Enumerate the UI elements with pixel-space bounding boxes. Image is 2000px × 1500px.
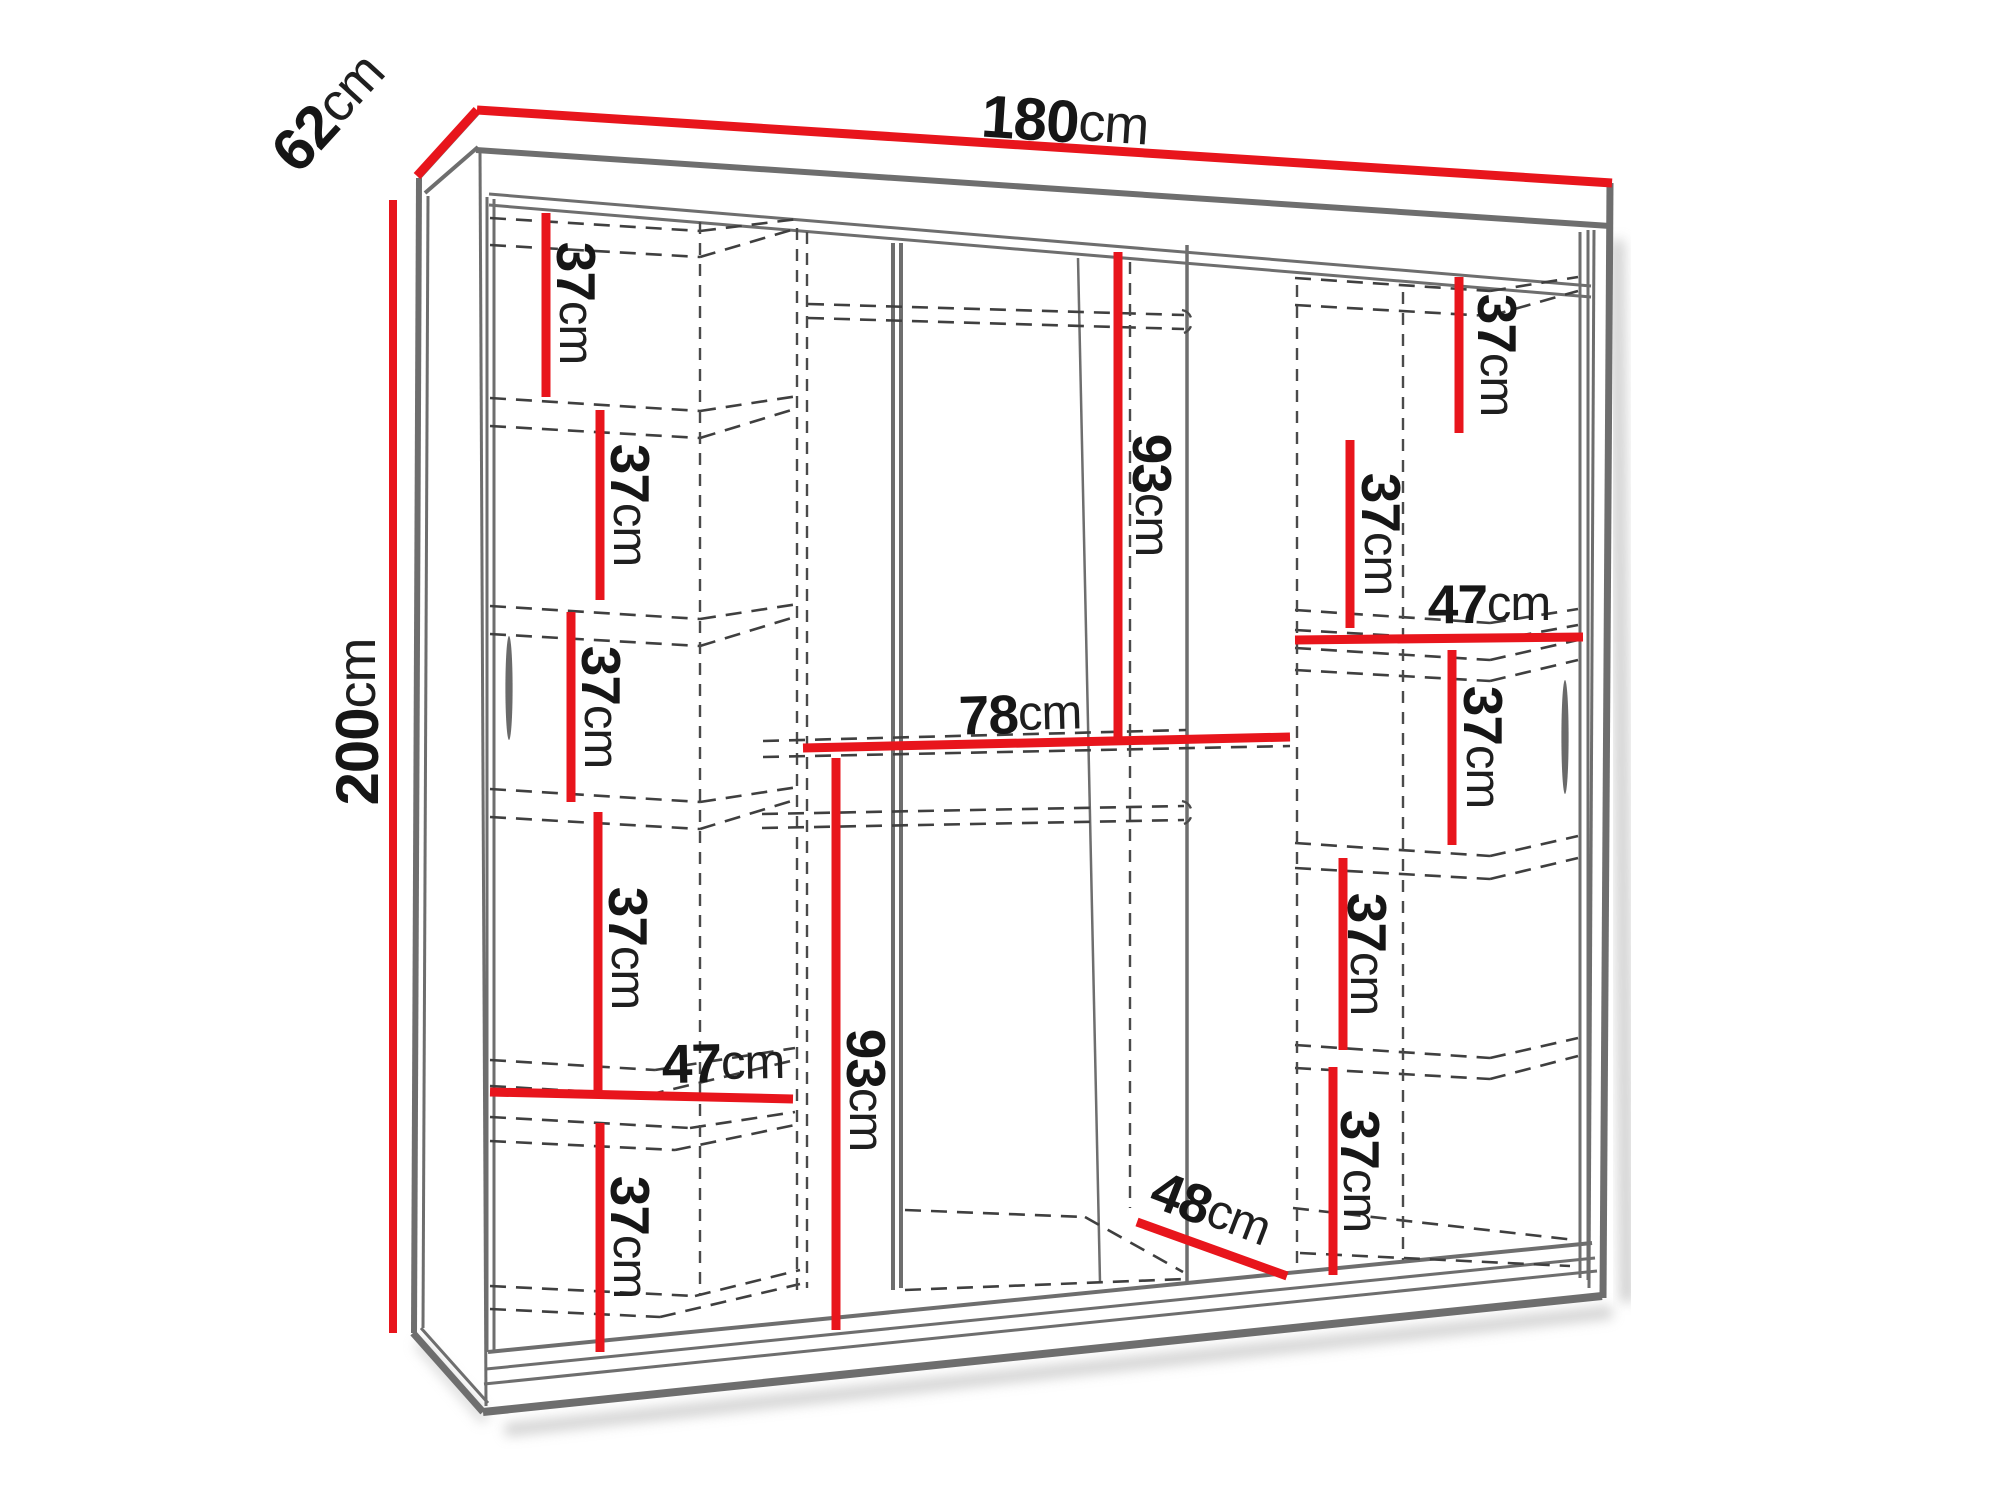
left-panel-inner-line bbox=[423, 196, 428, 1328]
label-right-47: 47cm bbox=[1428, 573, 1551, 635]
back-corner-line bbox=[1078, 258, 1100, 1282]
wardrobe-dimension-diagram: 180cm 62cm 200cm 37cm 37cm 37cm 37cm 47c… bbox=[0, 0, 2000, 1500]
shelf-dash bbox=[1295, 836, 1578, 879]
left-column-shelves-dashed bbox=[490, 218, 807, 1317]
label-middle-93-lower: 93cm bbox=[835, 1029, 897, 1152]
hanging-rod-upper bbox=[808, 304, 1184, 329]
bottom-left-corner-edge bbox=[413, 1333, 483, 1412]
left-door-handle bbox=[505, 636, 512, 740]
right-front-inner-edge bbox=[1589, 230, 1594, 1288]
label-left-37-1: 37cm bbox=[545, 242, 607, 365]
interior-ceiling-edge-1 bbox=[489, 194, 1591, 286]
label-middle-93-upper: 93cm bbox=[1121, 434, 1183, 557]
dim-line-left-47 bbox=[490, 1092, 793, 1099]
left-outer-edge bbox=[414, 178, 419, 1333]
right-outer-edge bbox=[1603, 183, 1610, 1298]
diagram-canvas: 180cm 62cm 200cm 37cm 37cm 37cm 37cm 47c… bbox=[0, 0, 2000, 1500]
label-left-37-2: 37cm bbox=[599, 444, 661, 567]
label-left-37-3: 37cm bbox=[570, 646, 632, 769]
hanging-rod-lower bbox=[762, 806, 1184, 828]
label-total-depth: 62cm bbox=[258, 40, 398, 185]
label-left-37-4: 37cm bbox=[597, 887, 659, 1010]
label-right-37-3: 37cm bbox=[1452, 686, 1514, 809]
shadow-bottom bbox=[505, 1312, 1612, 1430]
label-left-47: 47cm bbox=[661, 1031, 785, 1095]
label-total-width: 180cm bbox=[979, 82, 1150, 160]
shelf-dash bbox=[490, 604, 798, 646]
label-right-37-4: 37cm bbox=[1336, 893, 1398, 1016]
label-left-37-5: 37cm bbox=[599, 1176, 661, 1299]
shelf-dash bbox=[490, 1112, 795, 1150]
shelf-dash bbox=[490, 218, 798, 257]
top-band-bottom-edge bbox=[476, 150, 1610, 226]
front-left-edge bbox=[480, 150, 486, 1406]
shelf-dash bbox=[490, 396, 798, 438]
partition-back-dash bbox=[797, 228, 807, 1290]
right-door-handle bbox=[1561, 680, 1568, 794]
dim-line-right-47 bbox=[1295, 637, 1583, 640]
shadow-right bbox=[1617, 240, 1627, 1302]
label-right-37-2: 37cm bbox=[1350, 473, 1412, 596]
label-middle-78: 78cm bbox=[958, 681, 1082, 746]
dim-line-total-depth bbox=[417, 110, 477, 176]
interior-ceiling-edge-2 bbox=[489, 205, 1591, 297]
shelf-dash bbox=[490, 787, 798, 829]
label-total-height: 200cm bbox=[324, 638, 391, 805]
label-right-37-5: 37cm bbox=[1329, 1110, 1391, 1233]
label-right-37-1: 37cm bbox=[1466, 294, 1528, 417]
shelf-dash bbox=[1295, 640, 1578, 681]
